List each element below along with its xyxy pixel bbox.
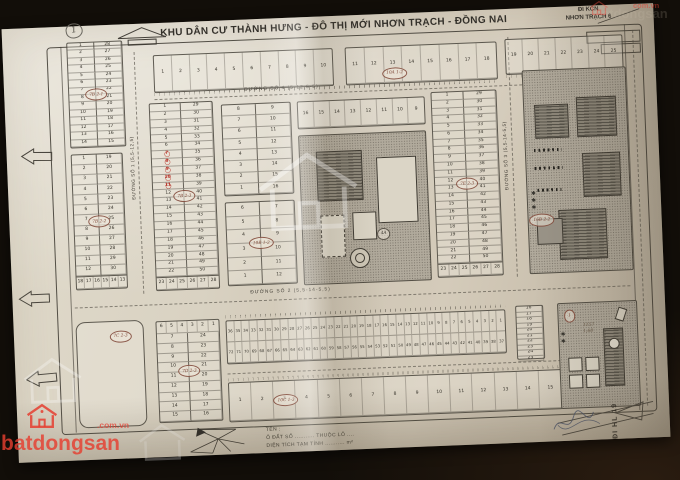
plot-number: 12 (361, 99, 378, 126)
building-footprint (615, 307, 628, 322)
plot-number: 37 (497, 331, 506, 352)
plot-block-7e-2-3: 1292303314325336347358369371038113912401… (430, 89, 503, 277)
paper-map: KHU DÂN CƯ THÀNH HƯNG - ĐÔ THỊ MỚI NHƠN … (2, 3, 671, 463)
road-entry-arrow-icon (18, 290, 51, 308)
plaza-square (568, 357, 583, 372)
plot-number: 25 (460, 264, 471, 276)
watermark-house-icon (246, 141, 370, 242)
watermark-house-icon (588, 0, 610, 16)
plot-number: 16 (298, 102, 315, 129)
plot-number: 23 (157, 278, 168, 290)
handwritten-signature (549, 403, 614, 438)
plot-number: 14 (329, 101, 346, 128)
plot-number: 13 (494, 372, 518, 411)
plot-number: 2 (172, 55, 191, 92)
building-footprint (603, 328, 625, 387)
plot-number: 15 (98, 138, 125, 147)
plot-block-center-top: 161514131211109 (297, 96, 426, 129)
plot-block-top-1: 12345678910 (153, 48, 334, 93)
plot-block-7d-2-3: 6543217248239221021112012191318141715167… (155, 319, 223, 423)
plot-number: 24 (167, 277, 178, 289)
plot-number: 2 (251, 382, 275, 421)
plot-number: 15 (421, 45, 441, 82)
block-label-stamp: 4A (377, 227, 391, 240)
plot-number: 2 (198, 320, 209, 332)
plot-number: 1 (154, 55, 173, 92)
plot-number: 13 (118, 275, 127, 287)
plot-number: 7 (362, 377, 386, 416)
plot-number: 18 (477, 42, 497, 79)
watermark-house-icon (24, 402, 60, 430)
plot-number: 14 (516, 371, 540, 410)
plot-number: 2 (228, 257, 263, 272)
tree-symbols: ✱✱ (559, 332, 566, 346)
building-footprint (582, 152, 622, 197)
plot-number: 7 (260, 51, 279, 88)
parked-cars-row (535, 166, 563, 170)
plot-number: 25 (605, 35, 623, 70)
plot-number: 11 (450, 374, 474, 413)
plot-number: 4 (295, 380, 319, 419)
building-footprint (534, 104, 569, 139)
plot-number: 8 (384, 376, 408, 415)
plot-number: 26 (470, 263, 481, 275)
watermark-domain-top-right: com.vn (633, 2, 659, 10)
plot-number: 16 (191, 410, 222, 421)
plot-number: 1 (228, 270, 263, 285)
plot-number: 13 (345, 100, 362, 127)
plot-number: 4 (207, 53, 226, 90)
plot-number: 12 (364, 47, 384, 84)
plot-block-right-column: 16171819202122232425 (515, 305, 545, 360)
plot-number: 21 (539, 38, 557, 73)
watermark-house-icon (133, 418, 191, 466)
plot-number: 28 (208, 276, 219, 288)
plot-number: 19 (505, 39, 523, 74)
plot-number: 14 (402, 45, 422, 82)
plot-number: 25 (518, 355, 544, 362)
plot-number: 26 (188, 277, 199, 289)
apartment-complex-16b: ✱✱✱ 16B 2-2 (522, 66, 634, 274)
building-footprint (558, 208, 608, 260)
plot-number: 27 (481, 263, 492, 275)
plaza-square (585, 357, 600, 372)
parked-cars-row (537, 188, 561, 192)
building-footprint (576, 96, 618, 138)
plot-number: 11 (376, 99, 393, 126)
plot-number: 12 (262, 269, 297, 284)
plot-number: 16 (439, 44, 459, 81)
watermark-brand: batdongsan (1, 433, 120, 454)
plot-number: 3 (187, 321, 198, 333)
plot-number: 10 (428, 375, 452, 414)
plot-number: 14 (71, 139, 98, 148)
plot-number: 5 (225, 53, 244, 90)
plot-number: 28 (492, 262, 503, 274)
plot-number: 23 (438, 264, 449, 276)
handwritten-area-note: 1157 1,60 (583, 323, 595, 335)
plot-number: 15 (313, 101, 330, 128)
plot-number: 10 (392, 98, 409, 125)
plot-number: 20 (522, 39, 540, 74)
plot-block-7b-2-3: 1292303314325336347358369371038113912401… (149, 101, 220, 291)
plot-number: 1 (497, 310, 506, 331)
facility-block-1: ✱✱ 1157 1,60 1 (557, 300, 641, 409)
legend-text: TÊN : Ô ĐẤT SỐ ........... THUỘC LÔ ....… (266, 423, 355, 450)
plot-number: 5 (167, 321, 178, 333)
plot-number: 22 (555, 37, 573, 72)
plot-number: 17 (458, 43, 478, 80)
plot-number: 27 (198, 276, 209, 288)
plot-block-10a: 111213141516171810A 1-2 (345, 41, 498, 85)
parked-cars-row (534, 148, 562, 152)
block-label-stamp: 7C 2-3 (109, 330, 132, 343)
plot-number: 1 (208, 320, 219, 332)
plot-block-7b-2-1: 1282273264255246237228219201019111812171… (66, 40, 126, 148)
block-label-stamp: 1 (564, 310, 575, 323)
plot-number: 5 (317, 379, 341, 418)
compass-rose-sketch (184, 424, 253, 457)
plot-number: 3 (189, 54, 208, 91)
watermark-domain-bottom-left: .com.vn (97, 421, 129, 430)
plot-number: 1 (229, 383, 253, 422)
tree-symbols: ✱✱✱ (529, 191, 537, 212)
plot-number: 24 (588, 36, 606, 71)
plot-number: 25 (177, 277, 188, 289)
plot-number: 24 (449, 264, 460, 276)
plot-number: 23 (572, 37, 590, 72)
plot-number: 12 (472, 373, 496, 412)
building-footprint (376, 156, 419, 224)
handwritten-page-number: 1 (64, 22, 84, 40)
plot-number: 8 (278, 50, 297, 87)
plot-number: 6 (243, 52, 262, 89)
plot-number: 9 (296, 50, 315, 87)
plot-number: 10 (314, 49, 333, 86)
plaza-square (586, 374, 601, 389)
plot-number: 11 (346, 48, 366, 85)
plot-number: 11 (262, 255, 297, 270)
road-entry-arrow-icon (21, 148, 53, 165)
plot-number: 9 (408, 97, 425, 124)
plaza-square (569, 374, 584, 389)
plot-block-7b-2-2: 1192203214225236247258269271028112912301… (71, 152, 128, 290)
plot-number: 9 (406, 375, 430, 414)
plot-number: 6 (340, 378, 364, 417)
plot-number: 6 (156, 322, 167, 334)
plot-number: 4 (177, 321, 188, 333)
area-note-line2: 1,60 (583, 329, 595, 335)
photo-of-subdivision-map: KHU DÂN CƯ THÀNH HƯNG - ĐÔ THỊ MỚI NHƠN … (0, 0, 680, 480)
